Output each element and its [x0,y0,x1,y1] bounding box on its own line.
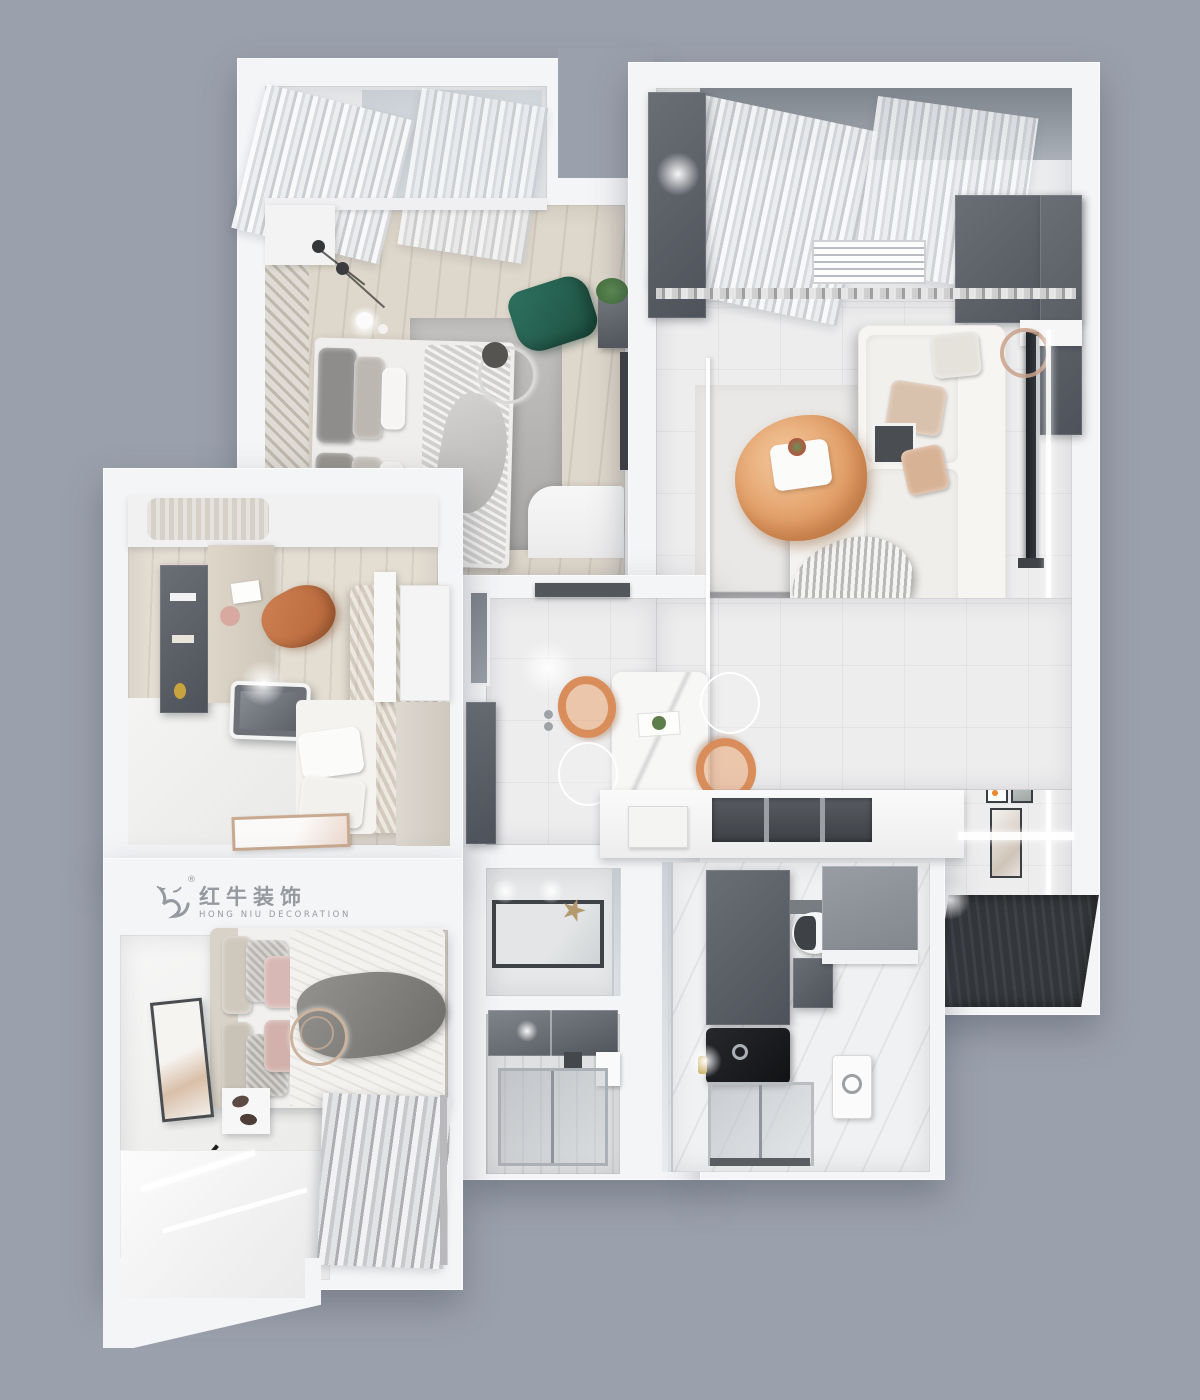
bath3-gray-counter [822,866,918,952]
shelf-books [172,635,194,643]
pillow [297,726,365,780]
curtain-edge [440,1095,447,1265]
gloss-streak [162,1187,308,1233]
gloss-streak [140,1150,256,1193]
washer-door-icon [842,1074,862,1094]
sphere-lamp-icon [356,312,373,329]
sink-divider [820,798,825,842]
brand-name-zh: 红牛装饰 [199,887,351,908]
bath3-glass-wall [662,862,673,1172]
bath3-side-cabinet [793,958,833,1008]
pillow [381,367,407,430]
lamp-glow [240,660,286,706]
curtain-rail [656,288,1076,299]
bedroom1-cabinet-top [265,205,335,265]
study-divider-panel [374,572,396,702]
dining-table [612,672,708,802]
flower-decor-icon [788,438,806,456]
bedding-roll [147,498,269,540]
gallery-frame-abstract [990,808,1022,878]
lamp-glow [656,152,700,196]
door-handle-dot [544,710,553,719]
ac-vent-icon [812,240,926,284]
sphere-lamp-icon [378,324,388,334]
master-curtains [317,1093,451,1269]
toilet-lid [794,916,816,950]
bath2-faucet-box [564,1052,582,1068]
floor-artwork [231,813,350,851]
washing-machine [832,1055,872,1119]
bath3-dark-vanity [706,870,790,1025]
study-cabinet [400,585,450,701]
sink-divider [764,798,769,842]
bedroom1-ring-knob [482,342,508,368]
master-nightstand [222,1088,270,1134]
kitchen-window [468,590,490,686]
desk-paper [231,580,262,604]
bedroom1-corner-desk [528,486,624,558]
cutting-boards [628,806,688,848]
pillow [352,356,384,439]
brand-name-en: HONG NIU DECORATION [199,911,351,920]
bath3-shower-enclosure [708,1082,814,1166]
window-seat-extension [120,1258,305,1298]
lamp-glow [538,878,564,904]
registered-mark: ® [187,875,196,885]
pink-pot-icon [220,606,240,626]
bath2-mirror-cabinet [488,1010,618,1056]
study-wall-shelf [160,565,208,713]
brand-watermark: ® 红牛装饰 HONG NIU DECORATION [152,880,372,926]
bath1-glass-screen [612,868,621,996]
bath2-shower-glass [498,1068,608,1166]
bedroom1-tv-strip [620,352,628,470]
tv-stand [1018,558,1044,568]
faucet-icon [732,1044,748,1060]
dining-chair-ghost [700,672,760,734]
ring-pendant-inner [300,1016,334,1050]
counter-light-line [958,832,1074,840]
lamp-glow [492,878,518,904]
cabinet-seam [550,1010,552,1056]
study-side-unit [396,702,450,846]
glass-seam [551,1071,554,1163]
hongniu-bull-logo-icon [152,884,190,922]
plant-icon [596,278,628,304]
dining-ceiling-light [535,583,630,597]
bath3-shelf [822,950,918,964]
throw-pillow [930,331,982,380]
lamp-glow [688,1044,722,1078]
pendant-light-icon [312,240,325,253]
brand-text: ® 红牛装饰 HONG NIU DECORATION [199,887,351,920]
mirror-reflection [516,1020,538,1042]
copper-ring-decor [1000,328,1050,378]
glass-seam [759,1085,762,1163]
pillow [316,348,356,444]
bedroom1-curtain-right [397,88,548,264]
door-handle-dot [544,722,553,731]
kitchen-wall-cabinets [466,702,496,844]
living-dark-wardrobe [648,92,706,318]
pendant-light-icon [336,262,349,275]
kitchen-sink [712,798,872,842]
table-plant-icon [652,716,666,730]
floorplan-render: ★ [0,0,1200,1400]
gold-vase-icon [174,683,186,699]
dot [992,790,998,796]
shower-drain [710,1158,810,1166]
shelf-books [170,593,196,601]
